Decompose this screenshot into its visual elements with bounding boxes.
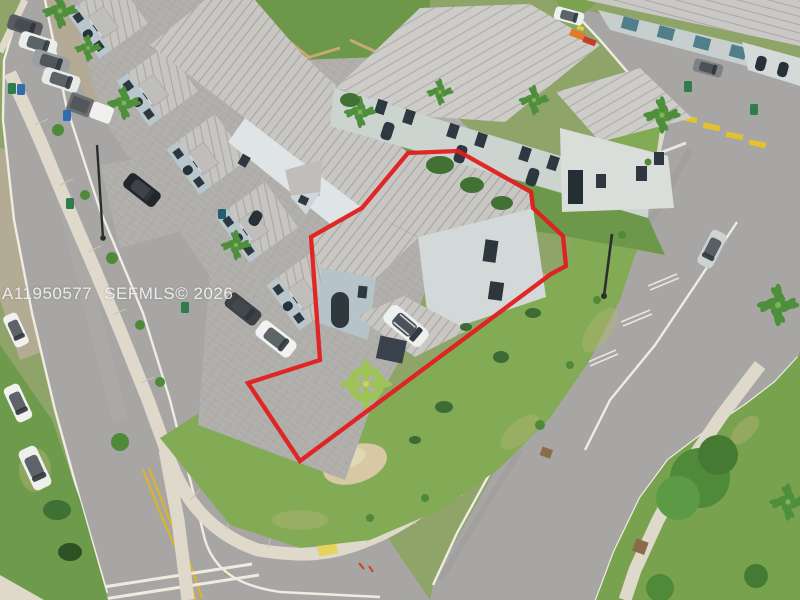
- window-front: [357, 286, 367, 299]
- aerial-photo-container: A11950577SEFMLS© 2026: [0, 0, 800, 600]
- watermark: A11950577SEFMLS© 2026: [2, 284, 233, 304]
- watermark-brand-year: SEFMLS© 2026: [104, 284, 233, 303]
- entry-arch: [331, 292, 349, 328]
- end-wall-door: [568, 170, 583, 204]
- watermark-mls-id: A11950577: [2, 284, 92, 303]
- window-se-lower: [488, 281, 504, 301]
